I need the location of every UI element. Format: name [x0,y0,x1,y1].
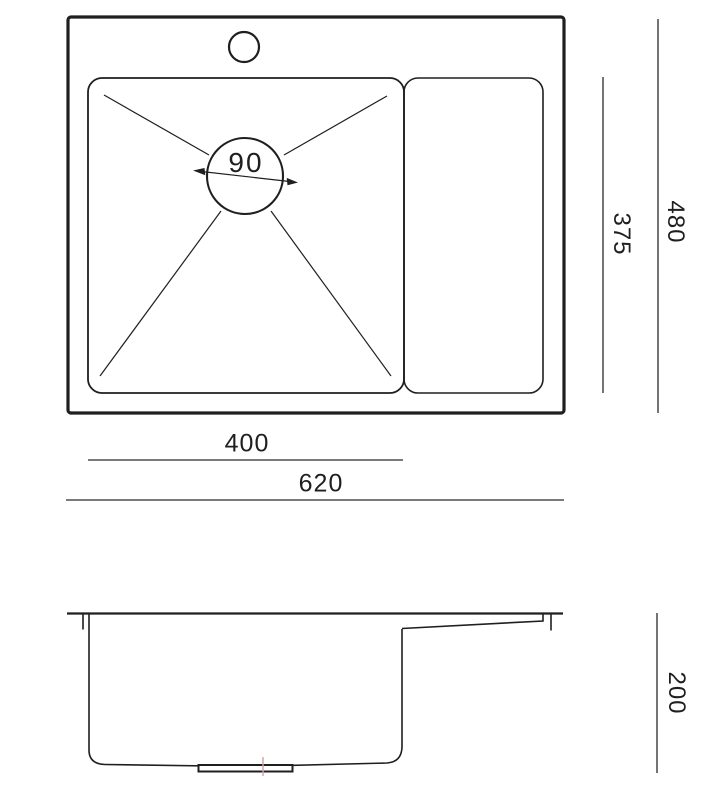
dimension-label-bowl-width: 400 [225,432,270,457]
bowl-outline [88,78,404,393]
dimension-label-overall-width: 620 [299,472,344,497]
sink-technical-drawing: 90 400 620 375 480 200 [0,0,727,800]
bowl-slope-line-bottom-right [271,211,391,376]
drain-flange [199,765,293,772]
dimension-label-drain-diameter: 90 [228,149,263,177]
dimension-label-bowl-depth: 375 [609,212,633,255]
outer-sink-outline [68,17,564,413]
top-view [68,17,564,413]
faucet-hole-circle [229,32,259,62]
drain-arrowhead-right [287,178,298,185]
side-view [67,614,563,777]
drawing-canvas [0,0,727,800]
drain-arrowhead-left [193,168,205,175]
dimension-lines [66,19,658,773]
dimension-label-overall-depth: 480 [663,200,687,243]
dimension-label-height: 200 [664,671,688,714]
bowl-slope-line-top-left [104,95,209,155]
drainboard-outline [404,78,543,393]
drainboard-profile [402,614,543,629]
bowl-profile [89,614,402,767]
bowl-slope-line-bottom-left [100,211,221,376]
bowl-slope-line-top-right [284,96,387,155]
